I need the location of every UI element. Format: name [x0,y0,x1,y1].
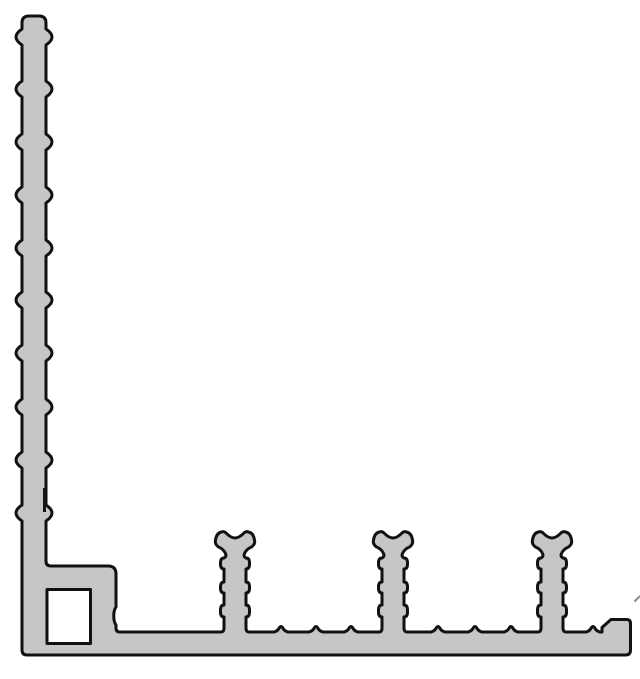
extrusion-profile-drawing [0,0,640,679]
corner-tick-mark [635,597,640,602]
drawing-canvas [0,0,640,679]
profile-outline [16,16,631,655]
